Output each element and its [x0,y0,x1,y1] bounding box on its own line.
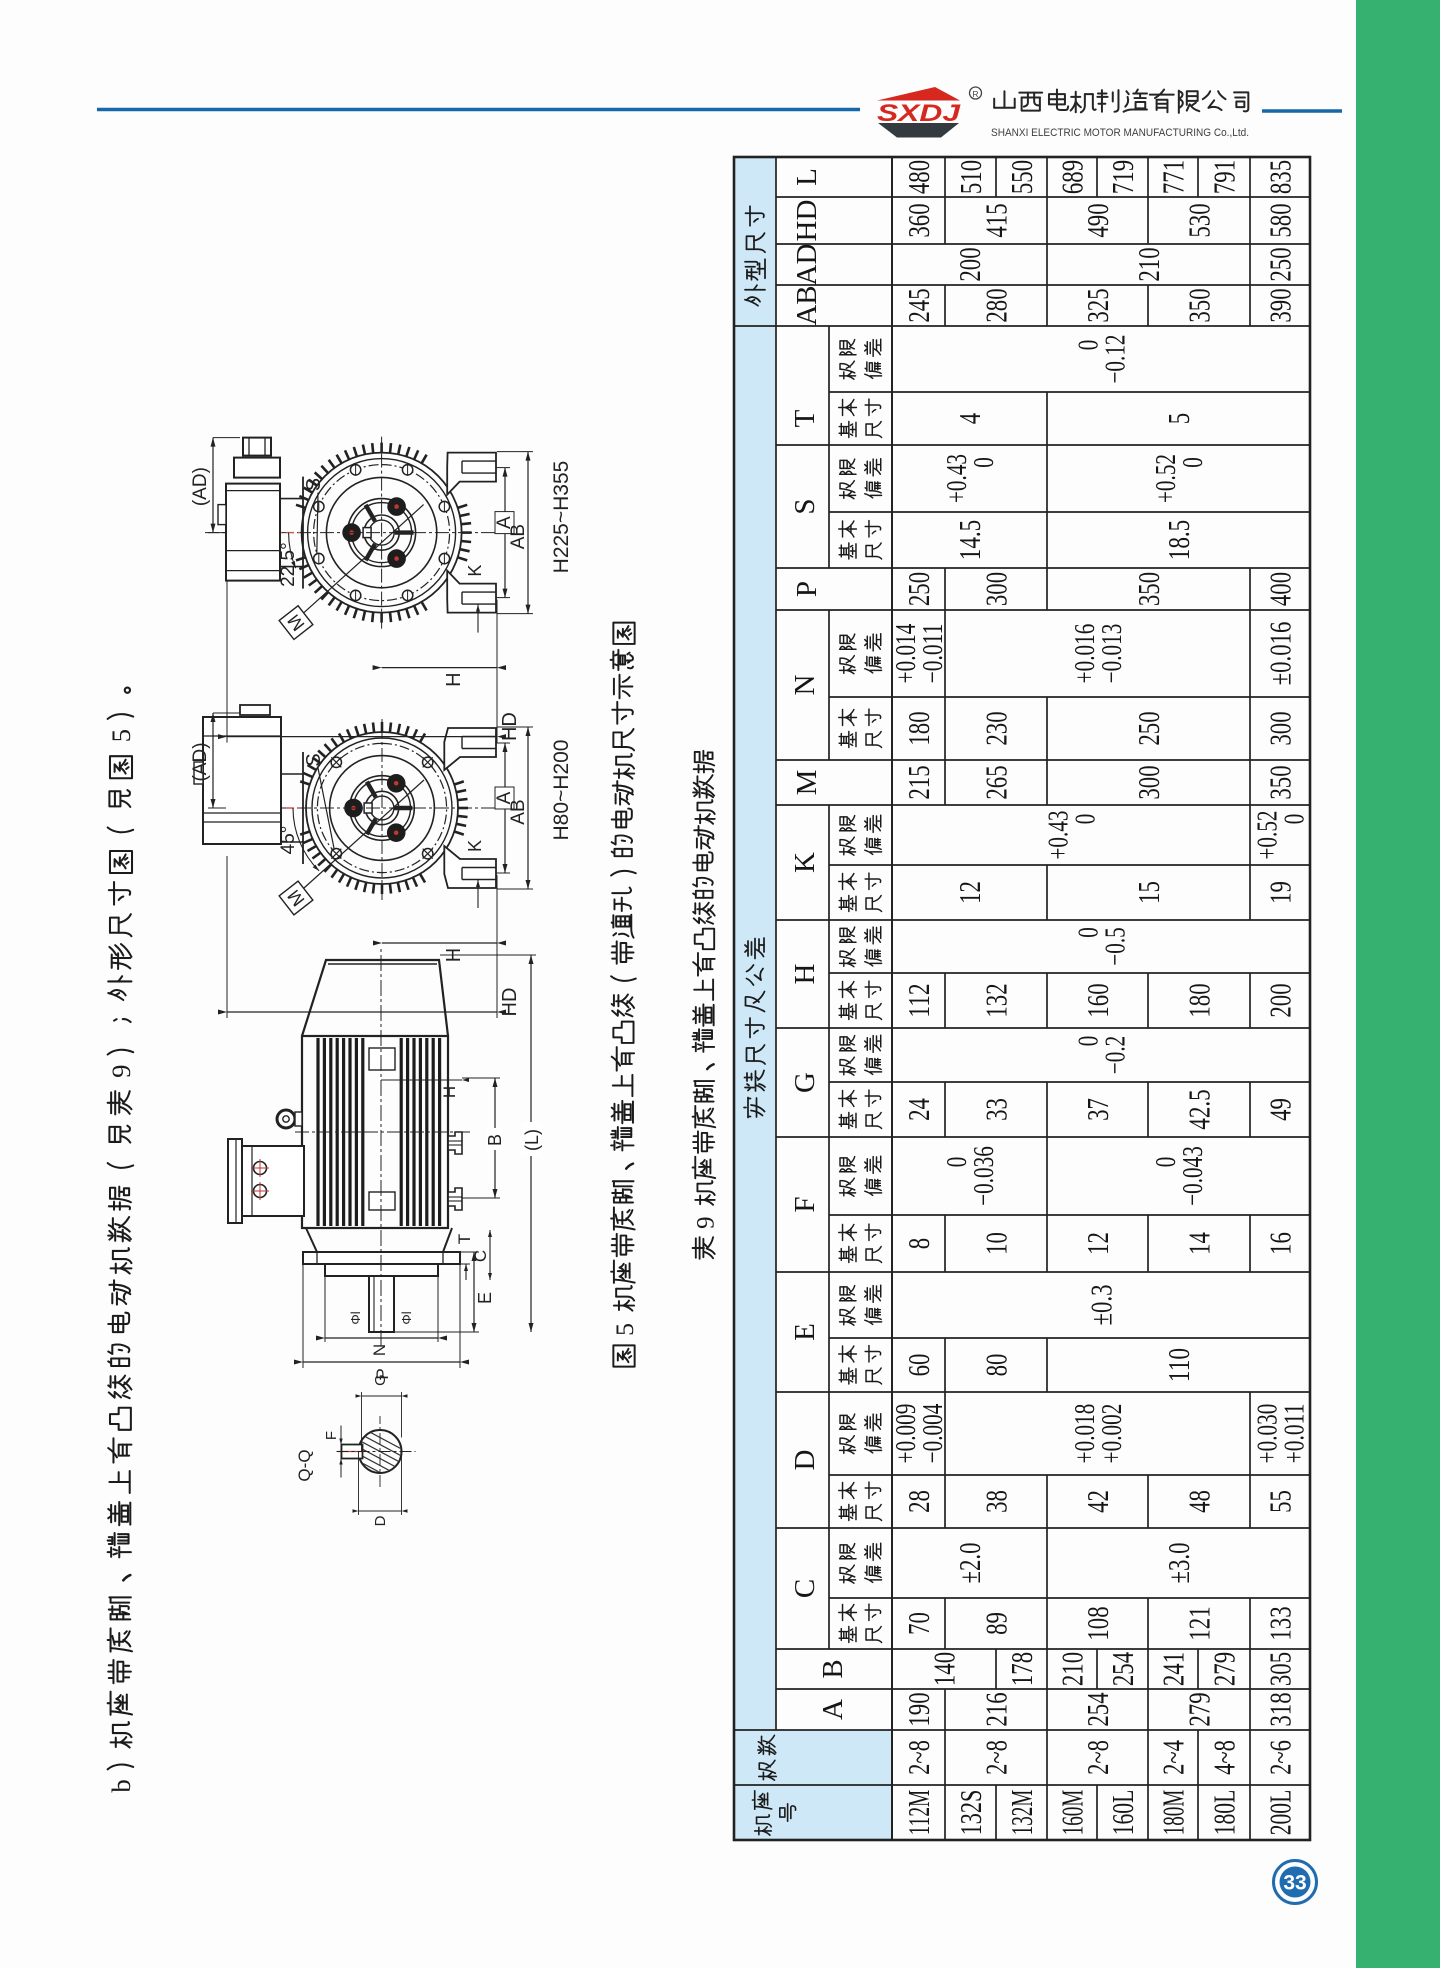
svg-text:AB: AB [508,799,529,824]
svg-text:279: 279 [1182,1692,1217,1726]
svg-text:110: 110 [1161,1348,1196,1382]
svg-text:0: 0 [1279,814,1311,825]
svg-text:38: 38 [979,1490,1014,1513]
svg-text:8: 8 [901,1238,936,1249]
svg-text:5: 5 [610,1323,639,1336]
svg-text:300: 300 [979,572,1014,606]
svg-text:180L: 180L [1207,1790,1242,1836]
svg-text:33: 33 [979,1098,1014,1121]
svg-text:4: 4 [952,412,987,424]
svg-text:Φl: Φl [399,1311,414,1324]
svg-text:±0.016: ±0.016 [1263,622,1298,686]
svg-text:D: D [789,1450,821,1471]
svg-text:5: 5 [1161,413,1196,424]
svg-text:132M: 132M [1004,1790,1039,1836]
svg-text:49: 49 [1263,1098,1298,1121]
svg-text:200: 200 [952,247,987,281]
svg-text:530: 530 [1182,203,1217,237]
svg-text:250: 250 [1263,247,1298,281]
svg-text:N: N [370,1344,389,1356]
svg-text:0: 0 [968,457,1000,468]
svg-text:S: S [303,478,325,491]
svg-text:2~8: 2~8 [1080,1740,1115,1775]
svg-text:415: 415 [979,203,1014,237]
svg-text:K: K [789,852,821,873]
svg-text:280: 280 [979,288,1014,322]
svg-text:F: F [323,1431,340,1440]
svg-text:P: P [373,1368,392,1379]
svg-text:C: C [471,1250,490,1262]
svg-text:33: 33 [1283,1872,1306,1895]
svg-text:2~6: 2~6 [1263,1740,1298,1775]
svg-text:250: 250 [1131,711,1166,745]
svg-text:SHANXI ELECTRIC MOTOR MANUFACT: SHANXI ELECTRIC MOTOR MANUFACTURING Co.,… [991,127,1249,139]
svg-text:HD: HD [499,988,521,1017]
svg-text:2~4: 2~4 [1156,1740,1191,1775]
svg-text:H80~H200: H80~H200 [550,740,573,841]
svg-text:10: 10 [979,1232,1014,1255]
svg-text:400: 400 [1263,572,1298,606]
svg-text:216: 216 [979,1692,1014,1726]
svg-text:300: 300 [1131,765,1166,799]
svg-text:S: S [303,753,325,766]
svg-text:325: 325 [1080,288,1115,322]
svg-text:265: 265 [979,765,1014,799]
svg-text:(AD): (AD) [190,742,211,781]
svg-text:2~8: 2~8 [979,1740,1014,1775]
svg-text:16: 16 [1263,1232,1298,1255]
svg-text:−0.12: −0.12 [1100,334,1132,383]
svg-text:254: 254 [1105,1652,1140,1687]
svg-text:15: 15 [1131,881,1166,904]
svg-text:390: 390 [1263,288,1298,322]
svg-text:H: H [440,1086,459,1098]
svg-text:210: 210 [1055,1652,1090,1686]
svg-text:5: 5 [106,729,136,742]
svg-text:R: R [972,89,978,99]
svg-text:19: 19 [1263,881,1298,904]
svg-text:A: A [817,1699,849,1720]
svg-text:180: 180 [1182,983,1217,1017]
svg-text:SXDJ: SXDJ [877,100,962,127]
svg-text:−0.043: −0.043 [1177,1146,1209,1206]
svg-text:12: 12 [1080,1232,1115,1255]
svg-text:279: 279 [1207,1652,1242,1686]
svg-text:E: E [475,1292,495,1304]
svg-text:140: 140 [927,1652,962,1686]
svg-text:42.5: 42.5 [1182,1089,1217,1130]
svg-text:180M: 180M [1156,1790,1191,1836]
svg-text:L: L [791,168,823,186]
svg-text:−0.004: −0.004 [917,1403,949,1463]
svg-text:200: 200 [1263,983,1298,1017]
svg-text:22.5°: 22.5° [278,542,299,587]
svg-text:550: 550 [1004,160,1039,194]
svg-text:AD: AD [791,244,823,286]
svg-text:245: 245 [901,288,936,322]
svg-text:305: 305 [1263,1652,1298,1686]
svg-text:60: 60 [901,1354,936,1377]
svg-text:14: 14 [1182,1232,1217,1255]
svg-text:190: 190 [901,1692,936,1726]
svg-text:89: 89 [979,1612,1014,1635]
svg-text:2~8: 2~8 [901,1740,936,1775]
svg-text:300: 300 [1263,711,1298,745]
svg-text:108: 108 [1080,1606,1115,1640]
svg-text:490: 490 [1080,203,1115,237]
svg-text:E: E [789,1323,821,1341]
svg-text:160M: 160M [1055,1790,1090,1836]
svg-text:B: B [817,1659,849,1678]
svg-text:350: 350 [1263,765,1298,799]
svg-text:350: 350 [1131,572,1166,606]
svg-text:Q-Q: Q-Q [295,1449,314,1481]
svg-text:48: 48 [1182,1490,1217,1513]
svg-text:241: 241 [1156,1652,1191,1686]
svg-text:132S: 132S [953,1790,988,1836]
svg-text:−0.011: −0.011 [917,624,949,684]
svg-text:160L: 160L [1105,1790,1140,1836]
svg-text:HD: HD [791,200,823,242]
svg-text:178: 178 [1004,1652,1039,1686]
svg-text:+0.011: +0.011 [1279,1404,1311,1464]
svg-text:Φl: Φl [348,1311,363,1324]
svg-text:−0.2: −0.2 [1100,1036,1132,1074]
svg-text:(L): (L) [522,1129,542,1151]
svg-text:132: 132 [979,983,1014,1017]
svg-text:580: 580 [1263,203,1298,237]
svg-text:D: D [372,1515,389,1526]
svg-text:9: 9 [692,1216,719,1228]
svg-text:55: 55 [1263,1490,1298,1513]
svg-text:12: 12 [952,881,987,904]
svg-text:T: T [455,1234,474,1244]
svg-text:b: b [106,1779,136,1792]
svg-text:B: B [485,1134,505,1146]
svg-text:360: 360 [901,203,936,237]
svg-text:121: 121 [1182,1606,1217,1640]
svg-text:±0.3: ±0.3 [1084,1285,1119,1326]
svg-text:112: 112 [901,983,936,1017]
svg-text:254: 254 [1080,1692,1115,1727]
svg-text:H: H [443,672,465,686]
svg-text:42: 42 [1080,1490,1115,1513]
svg-text:230: 230 [979,711,1014,745]
svg-text:250: 250 [901,572,936,606]
svg-text:4~8: 4~8 [1207,1740,1242,1775]
svg-text:480: 480 [901,160,936,194]
svg-text:F: F [789,1196,821,1212]
svg-text:S: S [789,498,821,514]
svg-text:0: 0 [1070,814,1102,825]
svg-text:K: K [465,565,485,577]
svg-text:215: 215 [901,765,936,799]
svg-text:112M: 112M [901,1790,936,1836]
svg-text:510: 510 [953,160,988,194]
svg-text:791: 791 [1207,160,1242,194]
svg-text:210: 210 [1131,247,1166,281]
svg-text:T: T [789,409,821,427]
svg-text:180: 180 [901,711,936,745]
svg-text:±3.0: ±3.0 [1161,1543,1196,1584]
svg-text:+0.002: +0.002 [1096,1404,1128,1464]
svg-text:−0.5: −0.5 [1100,927,1132,965]
svg-text:H: H [443,948,465,962]
svg-text:AB: AB [791,285,823,325]
svg-text:M: M [791,770,823,796]
svg-text:350: 350 [1182,288,1217,322]
svg-text:70: 70 [901,1612,936,1635]
svg-text:689: 689 [1055,160,1090,194]
svg-text:133: 133 [1263,1606,1298,1640]
svg-text:−0.013: −0.013 [1096,624,1128,684]
svg-text:719: 719 [1105,160,1140,194]
svg-text:24: 24 [901,1098,936,1121]
svg-text:P: P [791,581,823,597]
svg-text:K: K [465,840,485,852]
svg-text:835: 835 [1263,160,1298,194]
svg-text:318: 318 [1263,1692,1298,1726]
svg-text:28: 28 [901,1490,936,1513]
svg-text:160: 160 [1080,983,1115,1017]
svg-text:AB: AB [508,524,529,549]
svg-text:200L: 200L [1263,1790,1298,1836]
svg-text:14.5: 14.5 [952,520,987,561]
svg-text:37: 37 [1080,1098,1115,1121]
svg-text:N: N [789,674,821,695]
svg-text:H: H [789,963,821,984]
svg-text:9: 9 [106,1065,136,1078]
svg-text:80: 80 [979,1354,1014,1377]
svg-text:18.5: 18.5 [1161,520,1196,561]
svg-text:±2.0: ±2.0 [952,1543,987,1584]
svg-text:(AD): (AD) [190,467,211,506]
svg-text:−0.036: −0.036 [968,1146,1000,1206]
svg-text:771: 771 [1156,160,1191,194]
svg-text:C: C [789,1579,821,1598]
svg-text:HD: HD [499,712,521,741]
svg-text:H225~H355: H225~H355 [550,461,573,574]
svg-text:G: G [789,1072,821,1093]
svg-text:0: 0 [1177,457,1209,468]
